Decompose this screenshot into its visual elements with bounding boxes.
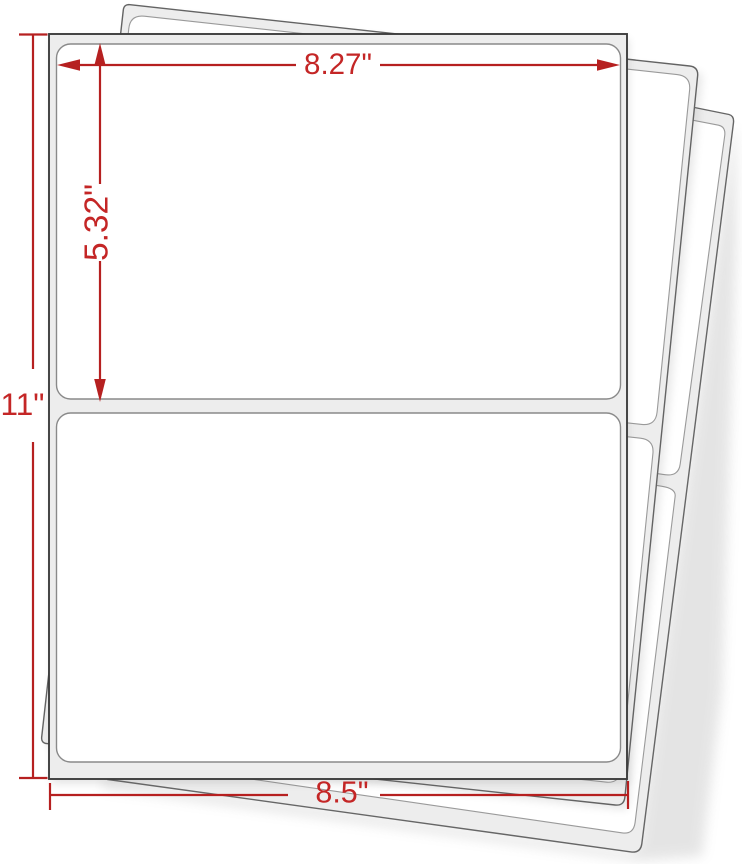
svg-text:8.5": 8.5" [315,776,368,810]
svg-text:5.32": 5.32" [79,184,116,261]
svg-text:11": 11" [1,386,45,422]
svg-text:8.27": 8.27" [304,48,372,81]
